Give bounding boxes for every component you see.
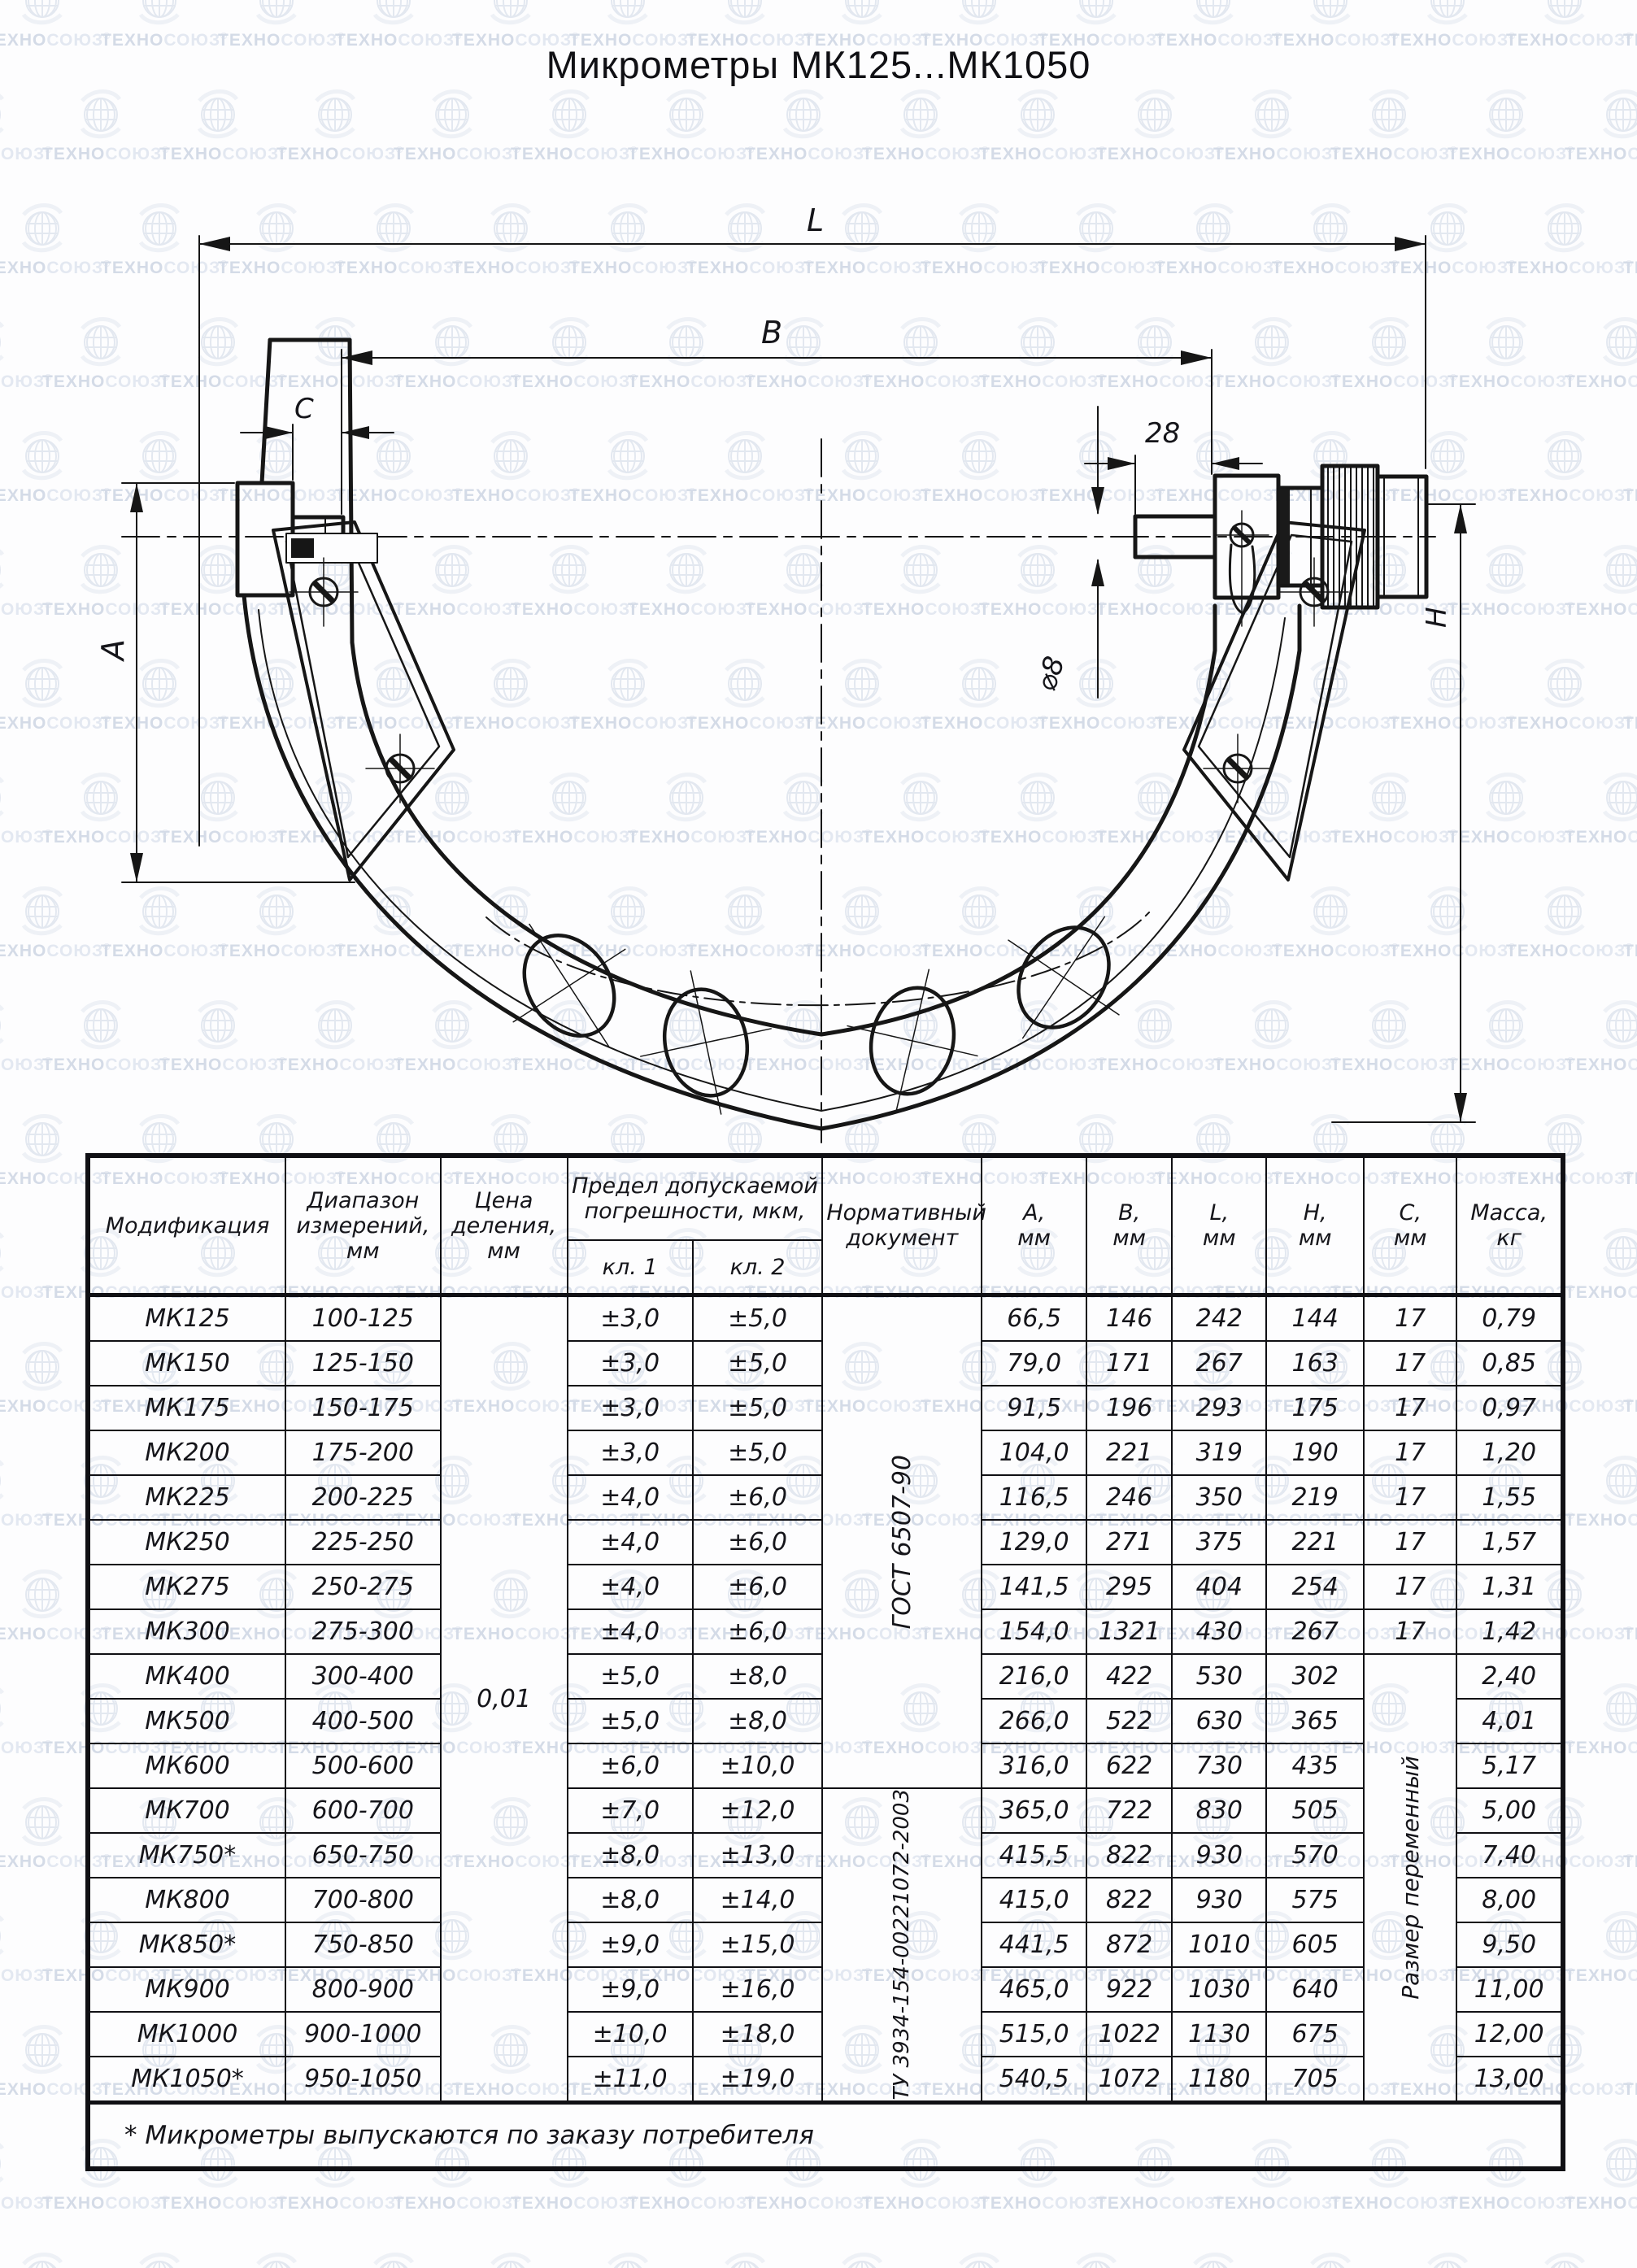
cell-class2: ±5,0 (693, 1295, 823, 1342)
cell-L: 350 (1172, 1475, 1266, 1520)
cell-class2: ±5,0 (693, 1386, 823, 1430)
cell-class2: ±12,0 (693, 1788, 823, 1833)
dim-label-28: 28 (1145, 417, 1180, 450)
cell-modification: МК700 (88, 1788, 285, 1833)
cell-A: 91,5 (982, 1386, 1086, 1430)
cell-range: 250-275 (285, 1565, 440, 1609)
cell-C: 17 (1364, 1341, 1456, 1386)
cell-class1: ±8,0 (568, 1878, 693, 1922)
col-header-modification: Модификация (88, 1156, 285, 1295)
cell-H: 575 (1266, 1878, 1364, 1922)
cell-B: 872 (1086, 1922, 1172, 1967)
cell-class1: ±3,0 (568, 1386, 693, 1430)
cell-B: 1321 (1086, 1609, 1172, 1654)
cell-H: 435 (1266, 1743, 1364, 1788)
cell-class1: ±3,0 (568, 1341, 693, 1386)
right-insulating-plate (1184, 522, 1365, 880)
cell-mass: 7,40 (1456, 1833, 1563, 1878)
cell-mass: 1,57 (1456, 1520, 1563, 1565)
cell-class1: ±9,0 (568, 1967, 693, 2012)
screw (290, 558, 358, 626)
cell-class1: ±6,0 (568, 1743, 693, 1788)
cell-B: 822 (1086, 1833, 1172, 1878)
cell-class2: ±13,0 (693, 1833, 823, 1878)
cell-B: 822 (1086, 1878, 1172, 1922)
cell-A: 365,0 (982, 1788, 1086, 1833)
col-header-L: L, мм (1172, 1156, 1266, 1295)
cell-class2: ±19,0 (693, 2057, 823, 2103)
dim-label-L: L (807, 202, 824, 238)
cell-H: 190 (1266, 1430, 1364, 1475)
cell-range: 650-750 (285, 1833, 440, 1878)
lock-lever (1217, 511, 1269, 626)
cell-A: 79,0 (982, 1341, 1086, 1386)
watermark-tile: ТЕХНОСОЮЗ® (0, 1903, 42, 2017)
cell-H: 267 (1266, 1609, 1364, 1654)
cell-class1: ±5,0 (568, 1699, 693, 1743)
cell-modification: МК600 (88, 1743, 285, 1788)
cell-B: 196 (1086, 1386, 1172, 1430)
watermark-tile: ТЕХНОСОЮЗ® (1038, 2244, 1155, 2268)
col-header-division: Цена деления, мм (441, 1156, 568, 1295)
cell-mass: 5,00 (1456, 1788, 1563, 1833)
cell-B: 722 (1086, 1788, 1172, 1833)
watermark-tile: ТЕХНОСОЮЗ® (218, 2244, 335, 2268)
cell-modification: МК750* (88, 1833, 285, 1878)
dimension-28 (1085, 455, 1262, 514)
brand-stamp (291, 538, 314, 558)
cell-L: 319 (1172, 1430, 1266, 1475)
cell-class1: ±4,0 (568, 1565, 693, 1609)
cell-range: 100-125 (285, 1295, 440, 1342)
cell-L: 830 (1172, 1788, 1266, 1833)
cell-L: 293 (1172, 1386, 1266, 1430)
cell-B: 622 (1086, 1743, 1172, 1788)
cell-class1: ±5,0 (568, 1654, 693, 1699)
watermark-tile: ТЕХНОСОЮЗ® (452, 2244, 569, 2268)
cell-modification: МК150 (88, 1341, 285, 1386)
cell-H: 675 (1266, 2012, 1364, 2057)
cell-C: 17 (1364, 1386, 1456, 1430)
cell-B: 271 (1086, 1520, 1172, 1565)
col-header-error-limit: Предел допускаемой погрешности, мкм, (568, 1156, 823, 1240)
watermark-tile: ТЕХНОСОЮЗ® (101, 2244, 218, 2268)
cell-H: 605 (1266, 1922, 1364, 1967)
watermark-tile: ТЕХНОСОЮЗ® (1623, 1789, 1637, 1903)
cell-A: 316,0 (982, 1743, 1086, 1788)
cell-A: 441,5 (982, 1922, 1086, 1967)
cell-class1: ±8,0 (568, 1833, 693, 1878)
cell-modification: МК1000 (88, 2012, 285, 2057)
dim-label-B: B (761, 315, 782, 350)
cell-mass: 13,00 (1456, 2057, 1563, 2103)
cell-mass: 1,42 (1456, 1609, 1563, 1654)
cell-A: 66,5 (982, 1295, 1086, 1342)
cell-L: 1180 (1172, 2057, 1266, 2103)
cell-class1: ±4,0 (568, 1520, 693, 1565)
dim-label-C: C (294, 393, 314, 425)
cell-C: 17 (1364, 1565, 1456, 1609)
cell-B: 295 (1086, 1565, 1172, 1609)
dimension-dia8 (1091, 407, 1104, 698)
cell-C: 17 (1364, 1609, 1456, 1654)
cell-normative-doc: ТУ 3934-154-00221072-2003 (822, 1788, 982, 2103)
cell-H: 365 (1266, 1699, 1364, 1743)
cell-range: 800-900 (285, 1967, 440, 2012)
watermark-tile: ТЕХНОСОЮЗ® (1623, 2017, 1637, 2131)
cell-range: 950-1050 (285, 2057, 440, 2103)
page-title: Микрометры МК125...МК1050 (0, 42, 1637, 87)
cell-mass: 0,79 (1456, 1295, 1563, 1342)
cell-C: 17 (1364, 1520, 1456, 1565)
cell-A: 540,5 (982, 2057, 1086, 2103)
cell-class2: ±6,0 (693, 1565, 823, 1609)
col-header-A: А, мм (982, 1156, 1086, 1295)
col-header-range: Диапазон измерений, мм (285, 1156, 440, 1295)
cell-H: 705 (1266, 2057, 1364, 2103)
cell-B: 1072 (1086, 2057, 1172, 2103)
cell-H: 640 (1266, 1967, 1364, 2012)
micrometer-frame (237, 340, 1300, 1129)
cell-modification: МК225 (88, 1475, 285, 1520)
watermark-tile: ТЕХНОСОЮЗ® (1506, 2244, 1623, 2268)
dim-label-H: Н (1421, 607, 1453, 628)
cell-class2: ±15,0 (693, 1922, 823, 1967)
cell-L: 375 (1172, 1520, 1266, 1565)
table-row: МК125100-1250,01±3,0±5,0ГОСТ 6507-9066,5… (88, 1295, 1563, 1342)
watermark-tile: ТЕХНОСОЮЗ® (1565, 1903, 1637, 2017)
cell-B: 171 (1086, 1341, 1172, 1386)
cell-class1: ±3,0 (568, 1430, 693, 1475)
cell-modification: МК900 (88, 1967, 285, 2012)
cell-A: 465,0 (982, 1967, 1086, 2012)
cell-mass: 9,50 (1456, 1922, 1563, 1967)
cell-L: 242 (1172, 1295, 1266, 1342)
cell-class2: ±8,0 (693, 1654, 823, 1699)
cell-A: 266,0 (982, 1699, 1086, 1743)
cell-C-variable: Размер переменный (1364, 1654, 1456, 2103)
cell-modification: МК200 (88, 1430, 285, 1475)
cell-H: 505 (1266, 1788, 1364, 1833)
dim-label-A: A (95, 639, 131, 663)
cell-class1: ±3,0 (568, 1295, 693, 1342)
watermark-tile: ТЕХНОСОЮЗ® (1389, 2244, 1506, 2268)
cell-L: 404 (1172, 1565, 1266, 1609)
cell-L: 930 (1172, 1833, 1266, 1878)
cell-modification: МК275 (88, 1565, 285, 1609)
cell-A: 415,0 (982, 1878, 1086, 1922)
watermark-tile: ТЕХНОСОЮЗ® (1565, 2131, 1637, 2244)
cell-class2: ±6,0 (693, 1520, 823, 1565)
cell-L: 930 (1172, 1878, 1266, 1922)
technical-drawing: L B C 28 ⌀8 A Н (0, 81, 1637, 1147)
watermark-tile: ТЕХНОСОЮЗ® (1623, 1334, 1637, 1447)
cell-L: 1010 (1172, 1922, 1266, 1967)
cell-B: 221 (1086, 1430, 1172, 1475)
cell-division-value: 0,01 (441, 1295, 568, 2103)
cell-range: 175-200 (285, 1430, 440, 1475)
cell-range: 750-850 (285, 1922, 440, 1967)
cell-A: 415,5 (982, 1833, 1086, 1878)
cell-C: 17 (1364, 1430, 1456, 1475)
cell-range: 700-800 (285, 1878, 440, 1922)
cell-B: 246 (1086, 1475, 1172, 1520)
cell-H: 175 (1266, 1386, 1364, 1430)
cell-H: 254 (1266, 1565, 1364, 1609)
cell-mass: 12,00 (1456, 2012, 1563, 2057)
spec-table-wrap: МодификацияДиапазон измерений, ммЦена де… (85, 1153, 1565, 2171)
cell-range: 225-250 (285, 1520, 440, 1565)
watermark-tile: ТЕХНОСОЮЗ® (1155, 2244, 1272, 2268)
cell-mass: 2,40 (1456, 1654, 1563, 1699)
cell-A: 129,0 (982, 1520, 1086, 1565)
cell-C: 17 (1364, 1295, 1456, 1342)
watermark-tile: ТЕХНОСОЮЗ® (803, 2244, 921, 2268)
cell-L: 630 (1172, 1699, 1266, 1743)
cell-modification: МК850* (88, 1922, 285, 1967)
cell-range: 300-400 (285, 1654, 440, 1699)
watermark-tile: ТЕХНОСОЮЗ® (921, 2244, 1038, 2268)
col-header-mass: Масса, кг (1456, 1156, 1563, 1295)
col-header-C: С, мм (1364, 1156, 1456, 1295)
cell-modification: МК125 (88, 1295, 285, 1342)
cell-modification: МК175 (88, 1386, 285, 1430)
cell-class2: ±6,0 (693, 1475, 823, 1520)
cell-B: 146 (1086, 1295, 1172, 1342)
watermark-tile: ТЕХНОСОЮЗ® (1565, 1447, 1637, 1561)
cell-C: 17 (1364, 1475, 1456, 1520)
cell-modification: МК800 (88, 1878, 285, 1922)
col-header-normative: Нормативный документ (822, 1156, 982, 1295)
cell-class2: ±14,0 (693, 1878, 823, 1922)
cell-class2: ±5,0 (693, 1430, 823, 1475)
watermark-tile: ТЕХНОСОЮЗ® (0, 1675, 42, 1789)
cell-H: 221 (1266, 1520, 1364, 1565)
cell-class2: ±18,0 (693, 2012, 823, 2057)
col-header-B: В, мм (1086, 1156, 1172, 1295)
hole-pitch-arc (486, 911, 1151, 1005)
cell-class2: ±6,0 (693, 1609, 823, 1654)
cell-L: 530 (1172, 1654, 1266, 1699)
cell-modification: МК300 (88, 1609, 285, 1654)
cell-A: 154,0 (982, 1609, 1086, 1654)
cell-B: 922 (1086, 1967, 1172, 2012)
col-header-H: Н, мм (1266, 1156, 1364, 1295)
dimension-B (342, 350, 1212, 514)
cell-A: 141,5 (982, 1565, 1086, 1609)
watermark-tile: ТЕХНОСОЮЗ® (0, 1220, 42, 1334)
watermark-tile: ТЕХНОСОЮЗ® (686, 2244, 803, 2268)
watermark-tile: ТЕХНОСОЮЗ® (1623, 2244, 1637, 2268)
cell-class2: ±10,0 (693, 1743, 823, 1788)
cell-normative-doc: ГОСТ 6507-90 (822, 1295, 982, 1789)
watermark-tile: ТЕХНОСОЮЗ® (1565, 1675, 1637, 1789)
cell-A: 116,5 (982, 1475, 1086, 1520)
watermark-tile: ТЕХНОСОЮЗ® (1272, 2244, 1389, 2268)
watermark-tile: ТЕХНОСОЮЗ® (0, 1447, 42, 1561)
frame-holes (473, 880, 1160, 1129)
cell-modification: МК1050* (88, 2057, 285, 2103)
cell-range: 400-500 (285, 1699, 440, 1743)
cell-mass: 11,00 (1456, 1967, 1563, 2012)
cell-A: 515,0 (982, 2012, 1086, 2057)
cell-L: 267 (1172, 1341, 1266, 1386)
cell-H: 144 (1266, 1295, 1364, 1342)
cell-H: 163 (1266, 1341, 1364, 1386)
cell-modification: МК500 (88, 1699, 285, 1743)
cell-L: 430 (1172, 1609, 1266, 1654)
cell-mass: 8,00 (1456, 1878, 1563, 1922)
cell-modification: МК400 (88, 1654, 285, 1699)
cell-range: 125-150 (285, 1341, 440, 1386)
cell-class1: ±10,0 (568, 2012, 693, 2057)
screw (1280, 558, 1348, 626)
cell-B: 422 (1086, 1654, 1172, 1699)
cell-modification: МК250 (88, 1520, 285, 1565)
watermark-tile: ТЕХНОСОЮЗ® (0, 2131, 42, 2244)
cell-L: 1030 (1172, 1967, 1266, 2012)
dim-label-dia8: ⌀8 (1030, 652, 1072, 694)
cell-L: 1130 (1172, 2012, 1266, 2057)
watermark-tile: ТЕХНОСОЮЗ® (569, 2244, 686, 2268)
cell-mass: 0,97 (1456, 1386, 1563, 1430)
cell-mass: 4,01 (1456, 1699, 1563, 1743)
cell-B: 1022 (1086, 2012, 1172, 2057)
table-row: МК700600-700±7,0±12,0ТУ 3934-154-0022107… (88, 1788, 1563, 1833)
cell-mass: 1,31 (1456, 1565, 1563, 1609)
watermark-tile: ТЕХНОСОЮЗ® (335, 2244, 452, 2268)
col-header-class1: кл. 1 (568, 1240, 693, 1295)
col-header-class2: кл. 2 (693, 1240, 823, 1295)
cell-mass: 1,20 (1456, 1430, 1563, 1475)
cell-class2: ±16,0 (693, 1967, 823, 2012)
cell-class1: ±4,0 (568, 1609, 693, 1654)
cell-L: 730 (1172, 1743, 1266, 1788)
cell-A: 216,0 (982, 1654, 1086, 1699)
cell-range: 500-600 (285, 1743, 440, 1788)
datasheet-page: ТЕХНОСОЮЗ®ТЕХНОСОЮЗ®ТЕХНОСОЮЗ®ТЕХНОСОЮЗ®… (0, 0, 1637, 2268)
cell-class1: ±9,0 (568, 1922, 693, 1967)
cell-range: 150-175 (285, 1386, 440, 1430)
watermark-tile: ТЕХНОСОЮЗ® (0, 2244, 101, 2268)
cell-mass: 1,55 (1456, 1475, 1563, 1520)
cell-range: 600-700 (285, 1788, 440, 1833)
watermark-tile: ТЕХНОСОЮЗ® (1623, 1561, 1637, 1675)
cell-class2: ±8,0 (693, 1699, 823, 1743)
cell-class1: ±11,0 (568, 2057, 693, 2103)
cell-class1: ±4,0 (568, 1475, 693, 1520)
cell-H: 570 (1266, 1833, 1364, 1878)
cell-B: 522 (1086, 1699, 1172, 1743)
cell-H: 219 (1266, 1475, 1364, 1520)
watermark-tile: ТЕХНОСОЮЗ® (1565, 1220, 1637, 1334)
table-footnote: * Микрометры выпускаются по заказу потре… (88, 2103, 1563, 2170)
cell-range: 200-225 (285, 1475, 440, 1520)
cell-range: 900-1000 (285, 2012, 440, 2057)
cell-range: 275-300 (285, 1609, 440, 1654)
cell-A: 104,0 (982, 1430, 1086, 1475)
cell-mass: 5,17 (1456, 1743, 1563, 1788)
cell-class2: ±5,0 (693, 1341, 823, 1386)
cell-class1: ±7,0 (568, 1788, 693, 1833)
spec-table: МодификацияДиапазон измерений, ммЦена де… (85, 1153, 1565, 2171)
cell-mass: 0,85 (1456, 1341, 1563, 1386)
cell-H: 302 (1266, 1654, 1364, 1699)
